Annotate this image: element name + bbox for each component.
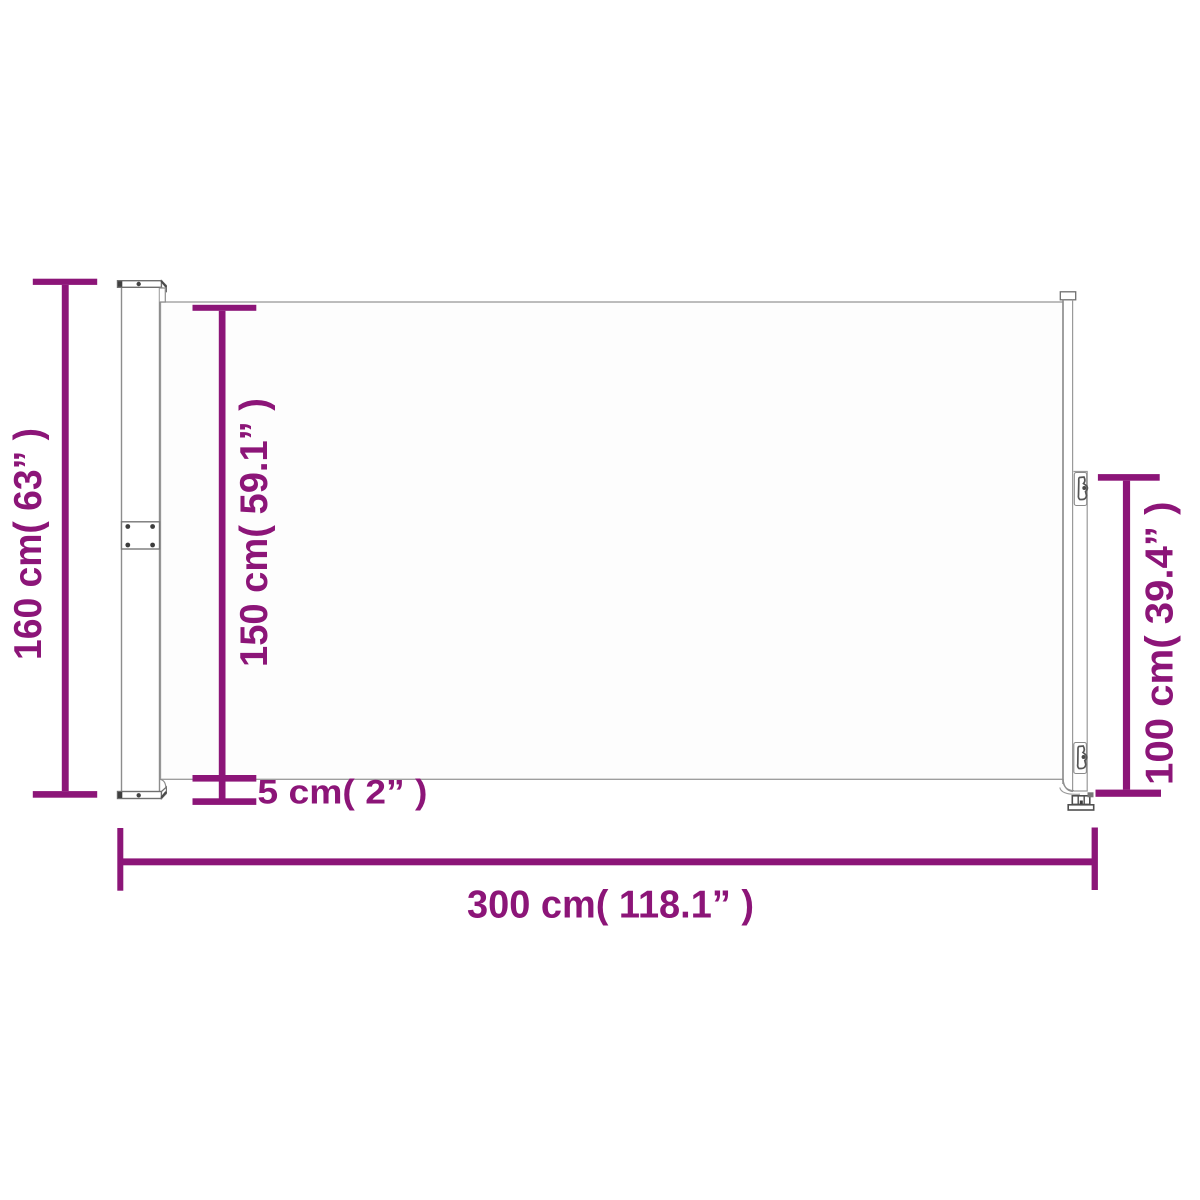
- svg-text:160 cm( 63” ): 160 cm( 63” ): [7, 428, 50, 660]
- svg-text:300 cm( 118.1” ): 300 cm( 118.1” ): [467, 884, 754, 927]
- svg-text:5 cm( 2” ): 5 cm( 2” ): [257, 773, 427, 811]
- svg-text:150 cm( 59.1” ): 150 cm( 59.1” ): [233, 398, 276, 667]
- svg-text:100 cm( 39.4” ): 100 cm( 39.4” ): [1139, 502, 1182, 786]
